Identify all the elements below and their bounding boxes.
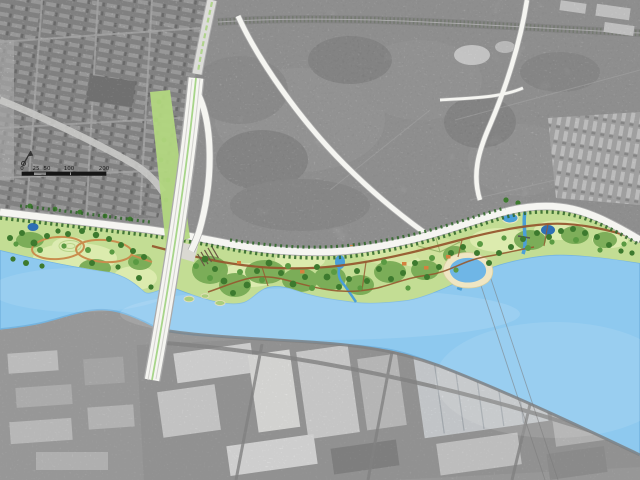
svg-text:0: 0 (20, 166, 24, 172)
master-plan-map: 0 25 50 100 200 (0, 0, 640, 480)
map-canvas: 0 25 50 100 200 (0, 0, 640, 480)
svg-text:200: 200 (99, 166, 110, 172)
svg-text:100: 100 (64, 166, 75, 172)
residential-area-northeast (545, 108, 640, 208)
svg-text:50: 50 (44, 166, 51, 172)
svg-text:25: 25 (33, 166, 40, 172)
mound-contours (52, 237, 88, 255)
